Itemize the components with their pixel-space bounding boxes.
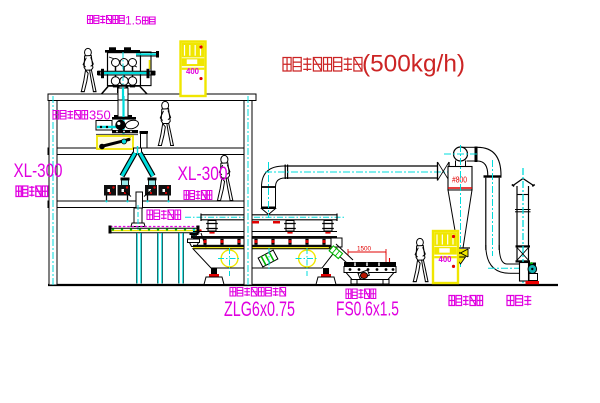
svg-text:XL-300: XL-300 [14,160,63,182]
svg-text:ZLG6x0.75: ZLG6x0.75 [224,298,295,321]
svg-text:XL-300: XL-300 [178,163,228,185]
svg-text:400: 400 [439,255,453,264]
svg-text:400: 400 [186,67,200,76]
svg-text:(500kg/h): (500kg/h) [362,51,465,78]
svg-text:#800: #800 [452,176,467,185]
svg-text:FS0.6x1.5: FS0.6x1.5 [336,299,399,321]
svg-text:1.5: 1.5 [125,14,142,28]
svg-text:1500: 1500 [357,246,371,253]
